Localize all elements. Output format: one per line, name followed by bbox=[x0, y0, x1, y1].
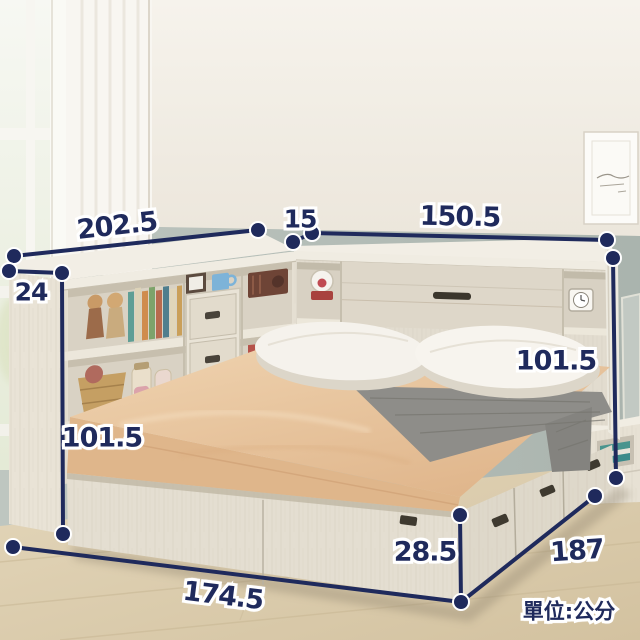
dim-label-headboard-height: 101.5 bbox=[516, 348, 596, 375]
product-dimension-image: 202.5 15 150.5 24 101.5 101.5 174.5 28.5… bbox=[0, 0, 640, 640]
picture-frame bbox=[584, 132, 638, 224]
dim-label-cabinet-depth: 24 bbox=[15, 280, 48, 305]
radio bbox=[248, 268, 288, 298]
dim-label-headboard-depth: 15 bbox=[284, 207, 317, 232]
dim-label-bed-width: 187 bbox=[549, 536, 604, 567]
books-upper bbox=[128, 282, 182, 342]
dim-line-base-height bbox=[460, 515, 461, 602]
unit-note: 單位:公分 bbox=[523, 602, 615, 623]
dim-line-cabinet-height bbox=[62, 273, 63, 534]
snow-globe bbox=[311, 270, 333, 300]
dim-label-headboard-width: 150.5 bbox=[420, 203, 501, 232]
dim-label-cabinet-height: 101.5 bbox=[62, 425, 142, 452]
dim-label-base-height: 28.5 bbox=[394, 539, 457, 566]
photo-frame bbox=[186, 272, 206, 293]
bedroom-scene bbox=[0, 0, 640, 640]
mirror bbox=[622, 294, 640, 423]
alarm-clock bbox=[569, 289, 593, 311]
